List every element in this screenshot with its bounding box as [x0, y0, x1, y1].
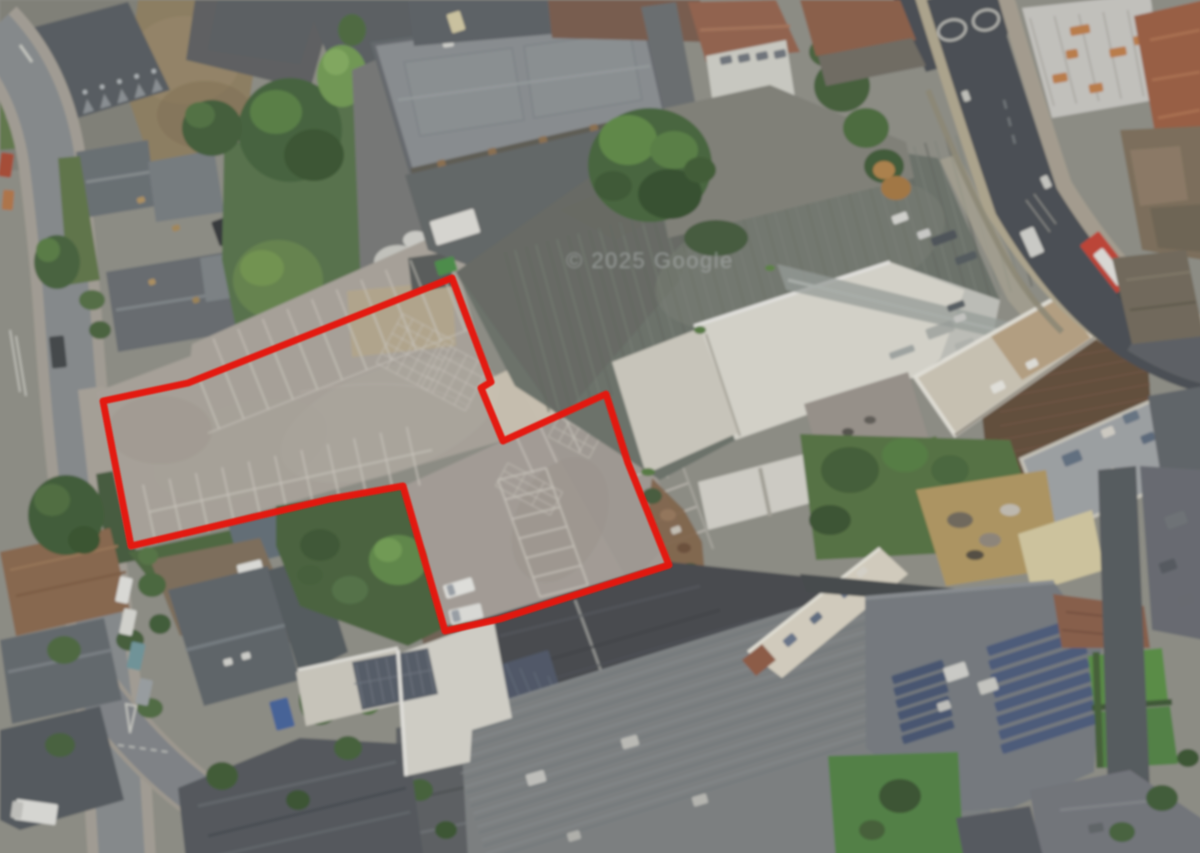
svg-text:© 2025 Google: © 2025 Google	[566, 248, 734, 273]
